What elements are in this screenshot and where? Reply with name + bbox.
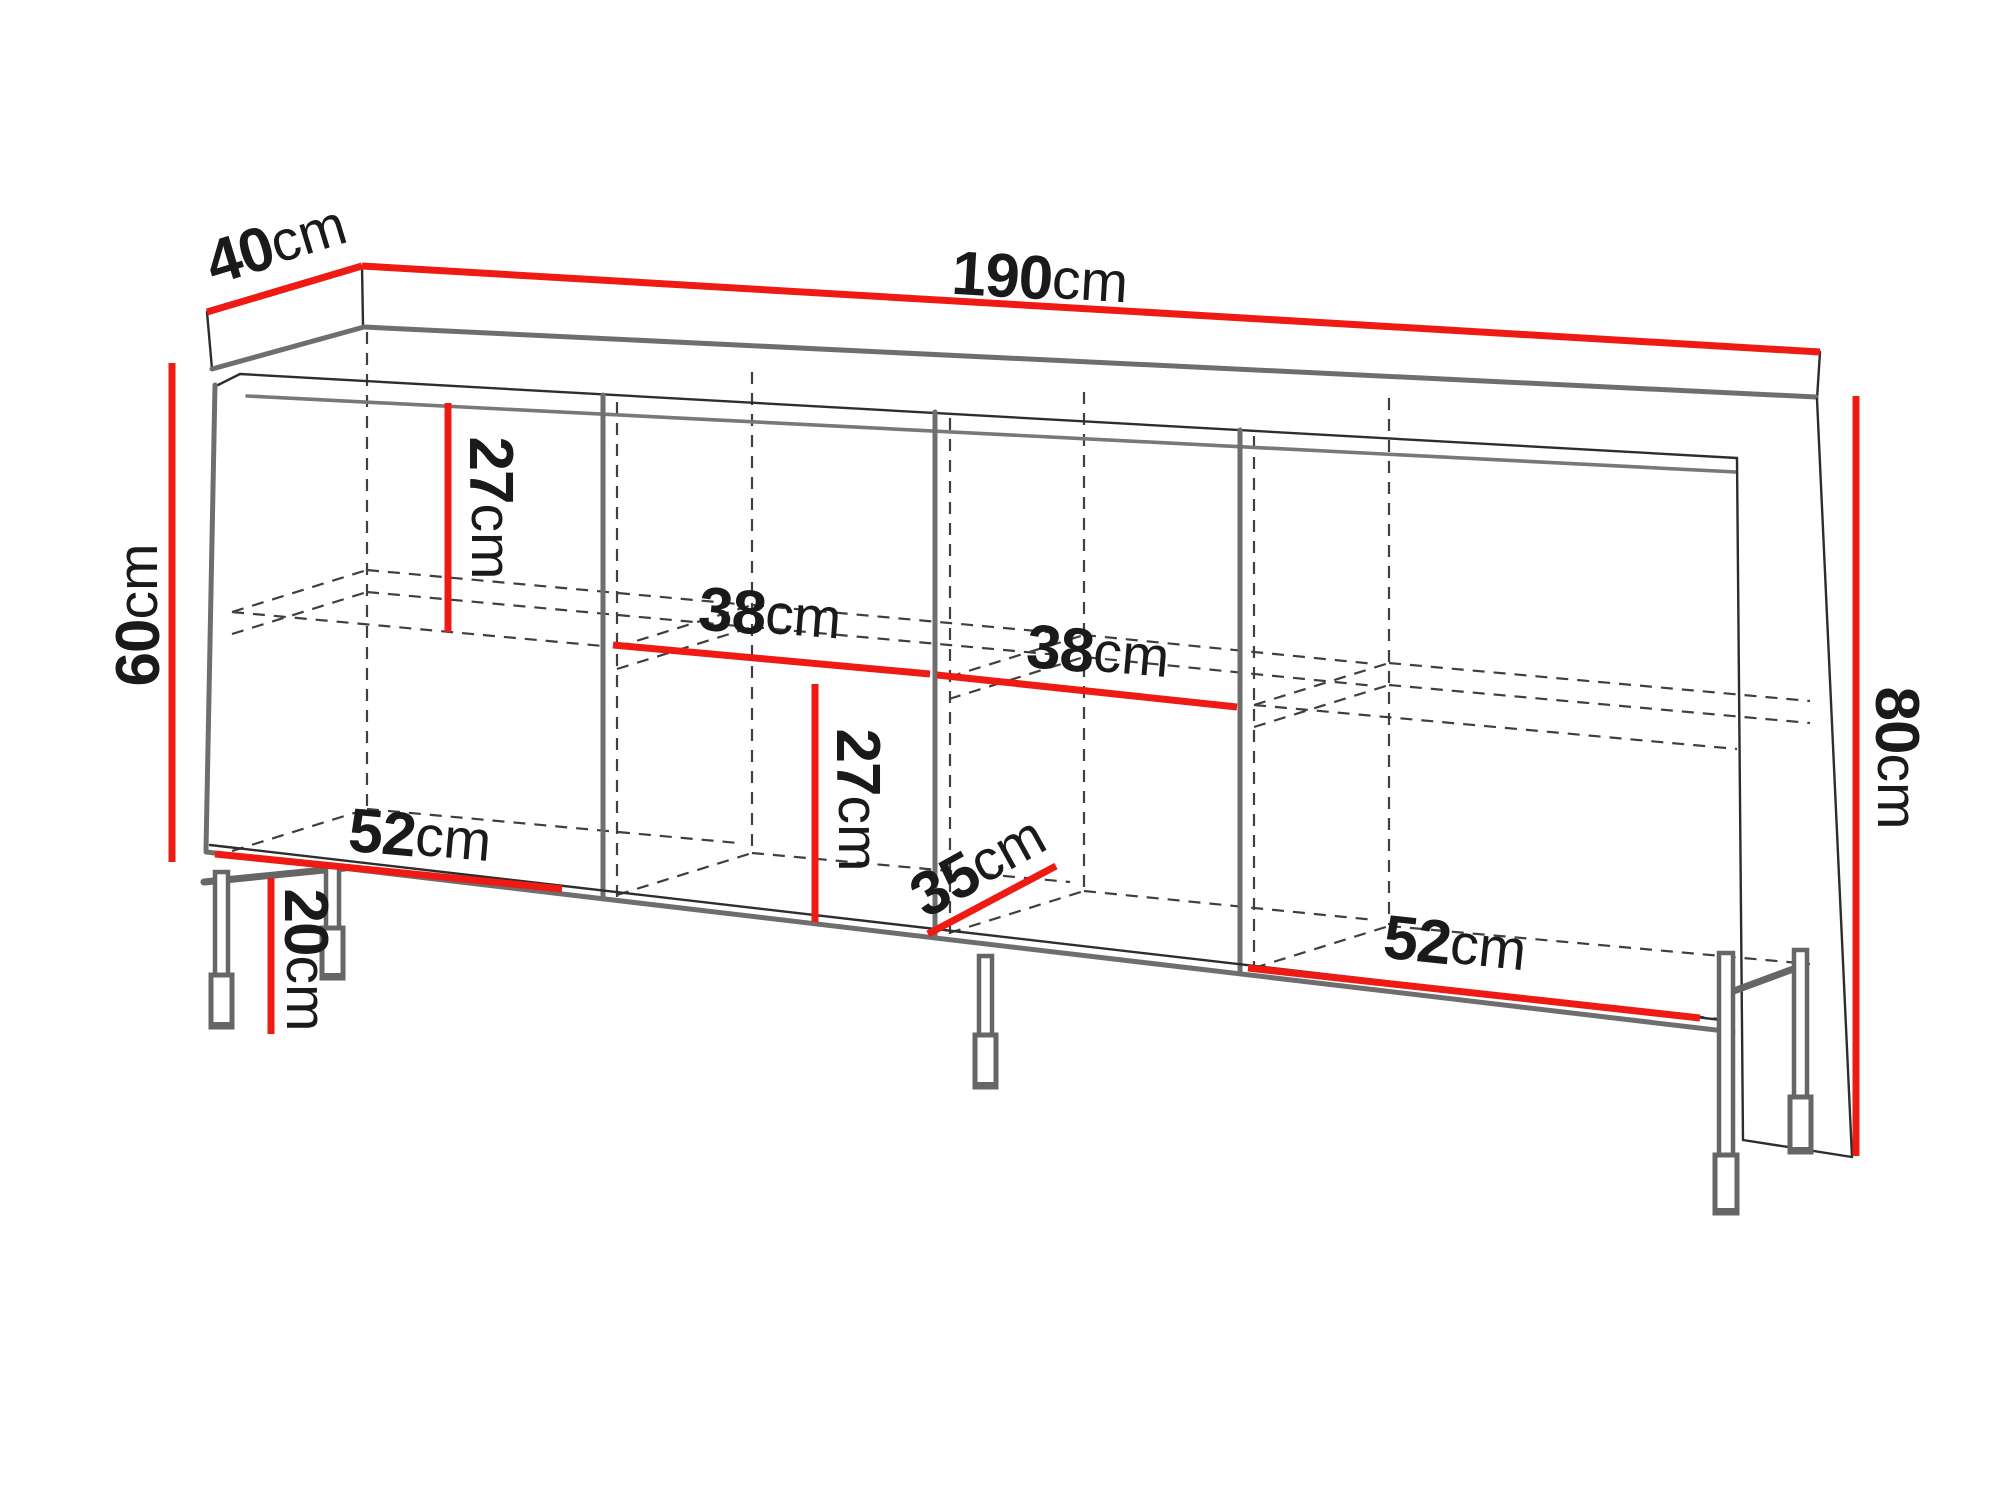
dimension-label-leg-height: 20cm xyxy=(272,889,341,1032)
upper-inner-height-unit: cm xyxy=(459,503,523,579)
dimension-label-inner-width-right: 38cm xyxy=(1024,611,1172,692)
cabinet-legs xyxy=(204,866,1811,1213)
sideboard-dimension-diagram: 40cm 190cm 60cm 80cm 27cm 38cm 38cm 27cm… xyxy=(0,0,2000,1500)
inner-width-right-value: 38 xyxy=(1024,611,1097,686)
bottom-width-left-value: 52 xyxy=(346,795,419,870)
dimension-label-bottom-width-left: 52cm xyxy=(346,795,494,876)
upper-inner-height-value: 27 xyxy=(457,437,526,504)
inner-width-left-unit: cm xyxy=(763,582,844,652)
leg-front-left xyxy=(211,872,232,1027)
bottom-width-right-unit: cm xyxy=(1447,912,1529,984)
dimension-line-inner-width-left xyxy=(613,645,930,674)
diagram-canvas: 40cm 190cm 60cm 80cm 27cm 38cm 38cm 27cm… xyxy=(0,0,2000,1500)
dimension-label-lower-inner-height: 27cm xyxy=(824,729,893,872)
dimension-label-height-right: 80cm xyxy=(1863,687,1932,830)
inner-width-left-value: 38 xyxy=(696,574,768,648)
width-top-unit: cm xyxy=(1050,247,1130,316)
lower-inner-height-value: 27 xyxy=(824,729,893,796)
width-top-value: 190 xyxy=(950,238,1054,313)
lower-inner-height-unit: cm xyxy=(826,795,890,871)
height-right-unit: cm xyxy=(1865,753,1929,829)
leg-height-value: 20 xyxy=(272,889,341,956)
bottom-width-left-unit: cm xyxy=(413,804,494,874)
dimension-label-bottom-width-right: 52cm xyxy=(1380,902,1529,986)
inner-width-right-unit: cm xyxy=(1091,620,1172,690)
cabinet-outline xyxy=(206,266,1852,1157)
leg-back-right xyxy=(1790,950,1811,1152)
leg-height-unit: cm xyxy=(274,955,338,1031)
dimension-label-upper-inner-height: 27cm xyxy=(457,437,526,580)
dimension-label-height-left: 60cm xyxy=(104,544,173,687)
dimension-label-width-top: 190cm xyxy=(950,238,1130,318)
height-right-value: 80 xyxy=(1863,687,1932,754)
height-left-value: 60 xyxy=(104,620,173,687)
height-left-unit: cm xyxy=(106,544,170,620)
leg-middle xyxy=(975,956,996,1087)
bottom-width-right-value: 52 xyxy=(1380,902,1454,978)
dimension-lines xyxy=(172,266,1856,1156)
leg-front-right xyxy=(1715,953,1737,1213)
dimension-labels: 40cm 190cm 60cm 80cm 27cm 38cm 38cm 27cm… xyxy=(104,190,1932,1031)
dimension-label-depth-top: 40cm xyxy=(198,190,355,298)
dimension-label-inner-width-left: 38cm xyxy=(696,574,844,654)
